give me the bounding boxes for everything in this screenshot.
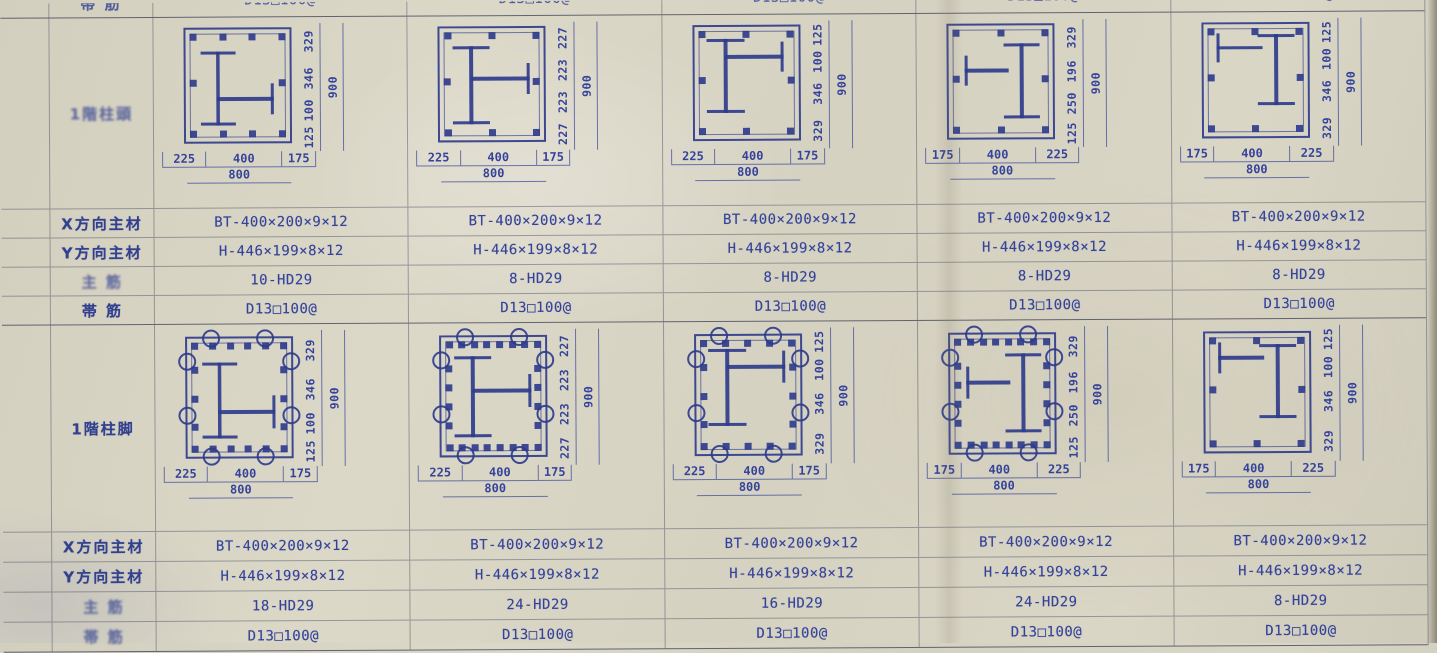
dim-label: 250 [1067,404,1081,426]
rebar-dot [190,80,197,87]
spec-value: D13□100@ [1011,624,1083,640]
rebar-dot [997,29,1004,36]
spec-value: BT-400×200×9×12 [1233,532,1367,549]
row-label: 主 筋 [82,271,123,292]
spec-value: 8-HD29 [763,269,817,285]
dimension-segment: 125 [1063,433,1085,462]
dimension-segment: 125 [300,437,322,466]
dim-label: 900 [1345,381,1359,403]
spec-cell: BT-400×200×9×12 [1173,525,1428,555]
dim-label: 225 [1036,147,1079,162]
spec-cell: 8-HD29 [662,263,917,292]
dim-label: 125 [812,331,826,353]
spec-cell: BT-400×200×9×12 [664,528,919,558]
y-direction-h-section [1257,34,1295,105]
rebar-dot [1005,338,1012,345]
dim-label: 400 [206,151,282,166]
row-label-hoop-cutoff: 帯 筋 [48,3,152,18]
rebar-dot [534,341,541,348]
rebar-dot [279,80,286,87]
dimension-total-v: 900 [324,330,346,466]
rebar-dot [1296,28,1303,35]
vertical-dimensions: 125100346329900 [808,327,855,463]
dimension-segment: 125 [808,327,830,356]
y-direction-h-section [1004,43,1040,119]
dimension-total-h: 800 [697,480,802,497]
x-direction-bt-section [1218,343,1264,374]
dim-label: 346 [303,379,317,401]
dim-label: 125 [1065,122,1079,144]
spec-cell: BT-400×200×9×12 [153,208,408,237]
rebar-dot [955,442,962,449]
dimension-segment: 100 [298,97,320,124]
vertical-dimensions: 125100346329900 [1317,325,1364,461]
spec-cell: 24-HD29 [410,589,665,619]
row-label-cell: X方向主材 [51,532,155,562]
section-label: 1階柱脚 [71,418,135,439]
rebar-dot [788,340,795,347]
dimension-total-h: 800 [1204,162,1309,179]
column-outline [185,336,294,459]
dim-label: 227 [556,27,570,49]
dim-label: 900 [582,385,596,407]
column-section-diagram: 227223223227900225400175800 [409,322,663,529]
spec-value: 8-HD29 [1018,268,1072,284]
vertical-dimensions: 227223223227900 [553,329,600,465]
dimension-segment: 223 [552,86,574,118]
dimension-row: 225400175 [162,151,316,168]
spec-value: D13□100@ [755,298,827,314]
dimension-total-h: 800 [188,482,293,499]
dim-label: 227 [558,437,572,459]
spec-cell: D13□100@ [664,618,919,648]
row-label-cell: 帯 筋 [50,296,154,325]
rebar-dot [444,32,451,39]
spec-cell: BT-400×200×9×12 [917,204,1172,233]
row-label: 帯 筋 [80,3,121,7]
rebar-dot [992,339,999,346]
dimension-segment: 346 [806,75,828,112]
dimension-stack: 227223223227 [552,22,576,150]
column-section-diagram: 329346100125900225400175800 [155,324,409,531]
dimension-total-h: 800 [696,165,801,182]
hoop-value-cutoff: D13□100@ [661,0,915,14]
spec-cell: H-446×199×8×12 [410,559,665,589]
rebar-dot [280,445,287,452]
dimension-stack: 329346100125 [299,330,323,466]
dim-label: 225 [1290,146,1333,161]
anchor-hook [1045,348,1063,366]
horizontal-dimensions: 175400225800 [925,147,1079,180]
diagram-cell: 329196250125900175400225800 [916,13,1171,204]
dimension-segment: 196 [1062,365,1084,398]
rebar-dot [446,341,453,348]
spec-cell: BT-400×200×9×12 [408,206,663,235]
row-label-cell: Y方向主材 [51,562,155,592]
rebar-dot [488,32,495,39]
dimension-segment: 125 [1315,18,1337,46]
anchor-hook [942,403,960,421]
dim-label: 225 [1038,462,1081,477]
row-label-cell: 主 筋 [50,267,154,296]
dim-label: 900 [1089,72,1103,94]
anchor-hook [765,445,783,463]
dimension-segment: 329 [297,23,319,60]
dimension-segment: 329 [1062,326,1084,366]
horizontal-dimensions: 175400225800 [927,462,1081,495]
dimension-stack: 125100346329 [1317,325,1341,461]
anchor-hook [457,446,475,464]
rebar-dot [532,32,539,39]
vertical-dimensions: 329196250125900 [1062,326,1109,462]
section-band-column-head: 1階柱頭 329346100125900225400175800 2272232… [0,11,1425,209]
diagram-cell: 227223223227900225400175800 [408,322,663,529]
dimension-segment: 223 [554,397,576,431]
dim-label: 329 [303,339,317,361]
dimension-stack: 329196250125 [1061,19,1085,147]
dim-label: 100 [810,50,824,72]
dimension-segment: 125 [298,123,320,151]
dimension-stack: 125100346329 [1315,18,1339,146]
rebar-dot [535,422,542,429]
diagram-cell: 125100346329900225400175800 [661,14,916,205]
hoop-value-cutoff: D13□100@ [1170,0,1424,12]
dim-label: 329 [1066,335,1080,357]
spec-value: H-446×199×8×12 [728,240,853,257]
dim-label: 329 [301,30,315,52]
rebar-dot [191,343,198,350]
vertical-dimensions: 227223223227900 [552,22,599,150]
spec-cell: BT-400×200×9×12 [662,205,917,234]
dim-label: 223 [558,369,572,391]
dimension-segment: 125 [1317,325,1339,354]
spec-cell: D13□100@ [156,621,411,651]
rebar-dot [1209,386,1216,393]
rebar-dot [788,77,795,84]
dimension-segment: 329 [1317,421,1339,461]
left-margin [3,592,51,621]
dimension-segment: 196 [1061,56,1083,87]
x-direction-bt-section [724,41,783,72]
dim-label: 100 [302,99,316,121]
dim-label: 900 [326,76,340,98]
spec-value: H-446×199×8×12 [219,243,344,260]
rebar-dot [244,342,251,349]
rebar-dot [993,442,1000,449]
anchor-hook [537,351,555,369]
dim-label: 100 [812,359,826,381]
column-section-diagram: 125100346329900225400175800 [662,14,916,205]
row-label-cell: X方向主材 [49,209,153,238]
rebar-dot [1296,74,1303,81]
left-margin [2,296,50,324]
dim-label: 196 [1066,371,1080,393]
spec-value: D13□100@ [500,300,572,316]
rebar-dot [743,128,750,135]
vertical-dimensions: 329196250125900 [1061,19,1108,147]
anchor-hook [202,330,220,348]
dim-label: 125 [1319,20,1333,42]
rebar-dot [1043,441,1050,448]
x-direction-bt-section [470,63,529,95]
vertical-dimensions: 125100346329900 [1315,18,1362,146]
left-margin [1,209,49,237]
row-label: Y方向主材 [62,241,143,262]
dimension-row: 225400175 [671,148,825,165]
spec-cell: D13□100@ [663,292,918,321]
diagram-cell: 329196250125900175400225800 [917,320,1172,527]
dim-label: 196 [1065,60,1079,82]
dim-label: 400 [962,462,1038,477]
dim-label: 175 [538,465,572,480]
row-label: X方向主材 [63,536,145,557]
dimension-segment: 346 [298,60,320,97]
dim-label: 329 [812,433,826,455]
horizontal-dimensions: 225400175800 [164,466,318,499]
dim-label: 175 [791,148,825,163]
rebar-dot [955,420,962,427]
spec-cell: H-446×199×8×12 [1171,231,1426,260]
spec-value: D13□100@ [1265,622,1337,638]
spec-cell: D13□100@ [919,617,1174,647]
left-margin [2,325,51,531]
rebar-dot [533,129,540,136]
section-band-column-base: 1階柱脚 329346100125900225400175800 2272232… [2,318,1427,532]
rebar-dot [789,443,796,450]
dim-label: 225 [1292,461,1335,476]
dim-label: 225 [162,152,206,167]
dim-label: 400 [1214,146,1290,161]
dim-label: 125 [1067,437,1081,459]
anchor-hook [1046,403,1064,421]
dimension-segment: 100 [1317,354,1339,382]
spec-value: 24-HD29 [506,596,569,612]
dim-label: 125 [810,23,824,45]
spec-value: BT-400×200×9×12 [216,537,350,554]
spec-row-hoops: 帯 筋 D13□100@ D13□100@ D13□100@ D13□100@ … [4,615,1428,652]
rebar-dot [1043,381,1050,388]
rebar-dot [1297,337,1304,344]
spec-value: 8-HD29 [1272,267,1326,283]
rebar-dot [446,444,453,451]
rebar-dot [245,445,252,452]
dimension-segment: 329 [1315,109,1337,146]
dim-label: 125 [302,126,316,148]
rebar-dot [446,385,453,392]
anchor-hook [687,404,705,422]
spec-value: D13□100@ [248,628,320,644]
x-direction-bt-section [219,395,276,428]
rebar-dot [535,384,542,391]
rebar-dot [1208,125,1215,132]
anchor-hook [965,444,983,462]
dimension-segment: 227 [554,431,576,465]
spec-cell: BT-400×200×9×12 [155,531,410,561]
dim-label: 346 [812,393,826,415]
spec-value: H-446×199×8×12 [473,242,598,259]
spec-value: BT-400×200×9×12 [723,211,857,228]
rebar-dot [1044,419,1051,426]
dimension-row: 225400175 [416,150,570,167]
anchor-hook [537,405,555,423]
diagram-cell: 125100346329900175400225800 [1172,318,1427,525]
dimension-segment: 329 [808,424,830,464]
dimension-total-h: 800 [950,163,1055,180]
horizontal-dimensions: 175400225800 [1180,146,1334,179]
horizontal-dimensions: 225400175800 [416,150,570,183]
column-outline [694,334,803,457]
spec-cell: H-446×199×8×12 [918,557,1173,587]
rebar-dot [280,395,287,402]
rebar-dot [698,31,705,38]
rebar-dot [953,30,960,37]
dim-label: 175 [537,150,571,165]
dimension-segment: 227 [552,22,574,54]
row-label-cell: 主 筋 [51,592,155,622]
column-outline [438,26,547,143]
spec-value: H-446×199×8×12 [1236,238,1361,255]
section-label-cell: 1階柱頭 [48,18,153,209]
dim-label: 175 [925,148,960,163]
spec-value: H-446×199×8×12 [475,566,600,583]
rebar-dot [281,423,288,430]
anchor-hook [510,328,528,346]
dimension-total-h: 800 [441,166,546,183]
dimension-segment: 223 [554,363,576,397]
dim-label: 329 [1320,116,1334,138]
dim-label: 400 [715,149,791,164]
anchor-hook [965,326,983,344]
diagram-cell: 227223223227900225400175800 [407,15,662,206]
x-direction-bt-section [966,366,1011,398]
rebar-dot [1041,29,1048,36]
dim-label: 175 [284,466,318,481]
y-direction-h-section [1259,344,1297,419]
hoop-value-cutoff: D13□100@ [915,0,1169,13]
dim-label: 175 [927,463,962,478]
dimension-segment: 250 [1061,86,1083,119]
dim-label: 346 [811,82,825,104]
horizontal-dimensions: 225400175800 [671,148,825,181]
dimension-total-v: 900 [833,327,855,463]
spec-cell: H-446×199×8×12 [664,558,919,588]
rebar-dot [1042,76,1049,83]
dim-label: 329 [1065,26,1079,48]
rebar-dot [1254,440,1261,447]
rebar-dot [700,340,707,347]
spec-cell: 8-HD29 [1171,260,1426,289]
rebar-dot [1252,125,1259,132]
dim-label: 223 [558,403,572,425]
spec-value: 16-HD29 [761,595,824,611]
dimension-segment: 346 [808,384,830,424]
rebar-dot [484,341,491,348]
dim-label: 223 [556,91,570,113]
dimension-row: 175400225 [1180,146,1334,163]
rebar-dot [789,421,796,428]
anchor-hook [256,329,274,347]
dim-label: 225 [673,464,717,479]
column-section-diagram: 227223223227900225400175800 [408,15,662,206]
dim-label: 400 [462,465,538,480]
dimension-segment: 100 [806,48,828,75]
column-section-diagram: 125100346329900225400175800 [664,321,918,528]
spec-cell: D13□100@ [1171,289,1426,318]
row-label-cell: 帯 筋 [52,622,156,652]
spec-cell: 8-HD29 [408,264,663,293]
spec-value: 18-HD29 [252,598,315,614]
dimension-segment: 125 [806,20,828,48]
column-outline [439,335,548,458]
dim-label: 225 [164,467,208,482]
column-section-diagram: 125100346329900175400225800 [1173,318,1427,525]
spec-value: D13□100@ [756,625,828,641]
rebar-dot [744,340,751,347]
column-section-diagram: 329196250125900175400225800 [917,13,1171,204]
rebar-dot [1209,337,1216,344]
left-margin [3,562,51,591]
rebar-dot [743,31,750,38]
spec-cell: H-446×199×8×12 [154,237,409,266]
spec-cell: D13□100@ [917,291,1172,320]
rebar-dot [190,131,197,138]
dimension-row: 225400175 [673,463,827,480]
rebar-dot [280,342,287,349]
spec-cell: 24-HD29 [919,587,1174,617]
rebar-dot [1298,386,1305,393]
dim-label: 227 [557,335,571,357]
dimension-total-v: 900 [578,329,600,465]
rebar-dot [444,79,451,86]
spec-value: BT-400×200×9×12 [469,213,603,230]
dim-label: 400 [1216,461,1292,476]
spec-cell: D13□100@ [1173,615,1428,645]
horizontal-dimensions: 225400175800 [162,151,316,184]
dim-label: 900 [836,384,850,406]
rebar-dot [701,443,708,450]
diagram-cell: 329346100125900225400175800 [154,324,409,531]
rebar-dot [699,128,706,135]
spec-value: BT-400×200×9×12 [977,210,1111,227]
rebar-dot [219,34,226,41]
rebar-dot [699,77,706,84]
spec-cell: D13□100@ [410,619,665,649]
spec-value: 8-HD29 [1274,592,1328,608]
section-label: 1階柱頭 [70,103,134,124]
left-margin [3,532,51,561]
rebar-dot [1298,440,1305,447]
dim-label: 346 [1319,80,1333,102]
spec-value: H-446×199×8×12 [729,565,854,582]
rebar-dot [745,443,752,450]
rebar-dot [249,130,256,137]
rebar-dot [278,33,285,40]
diagram-cell: 329346100125900225400175800 [152,17,407,208]
dim-label: 225 [416,150,460,165]
dimension-stack: 125100346329 [808,327,832,463]
rebar-dot [1042,126,1049,133]
rebar-dot [1207,75,1214,82]
dimension-stack: 329346100125 [297,23,321,151]
rebar-dot [192,424,199,431]
hoop-value-cutoff: D13□100@ [152,2,406,17]
dimension-segment: 100 [299,410,321,438]
dim-label: 175 [1180,146,1215,161]
rebar-dot [227,446,234,453]
spec-cell: D13□100@ [408,293,663,322]
column-outline [692,25,801,142]
row-label: X方向主材 [61,212,143,233]
